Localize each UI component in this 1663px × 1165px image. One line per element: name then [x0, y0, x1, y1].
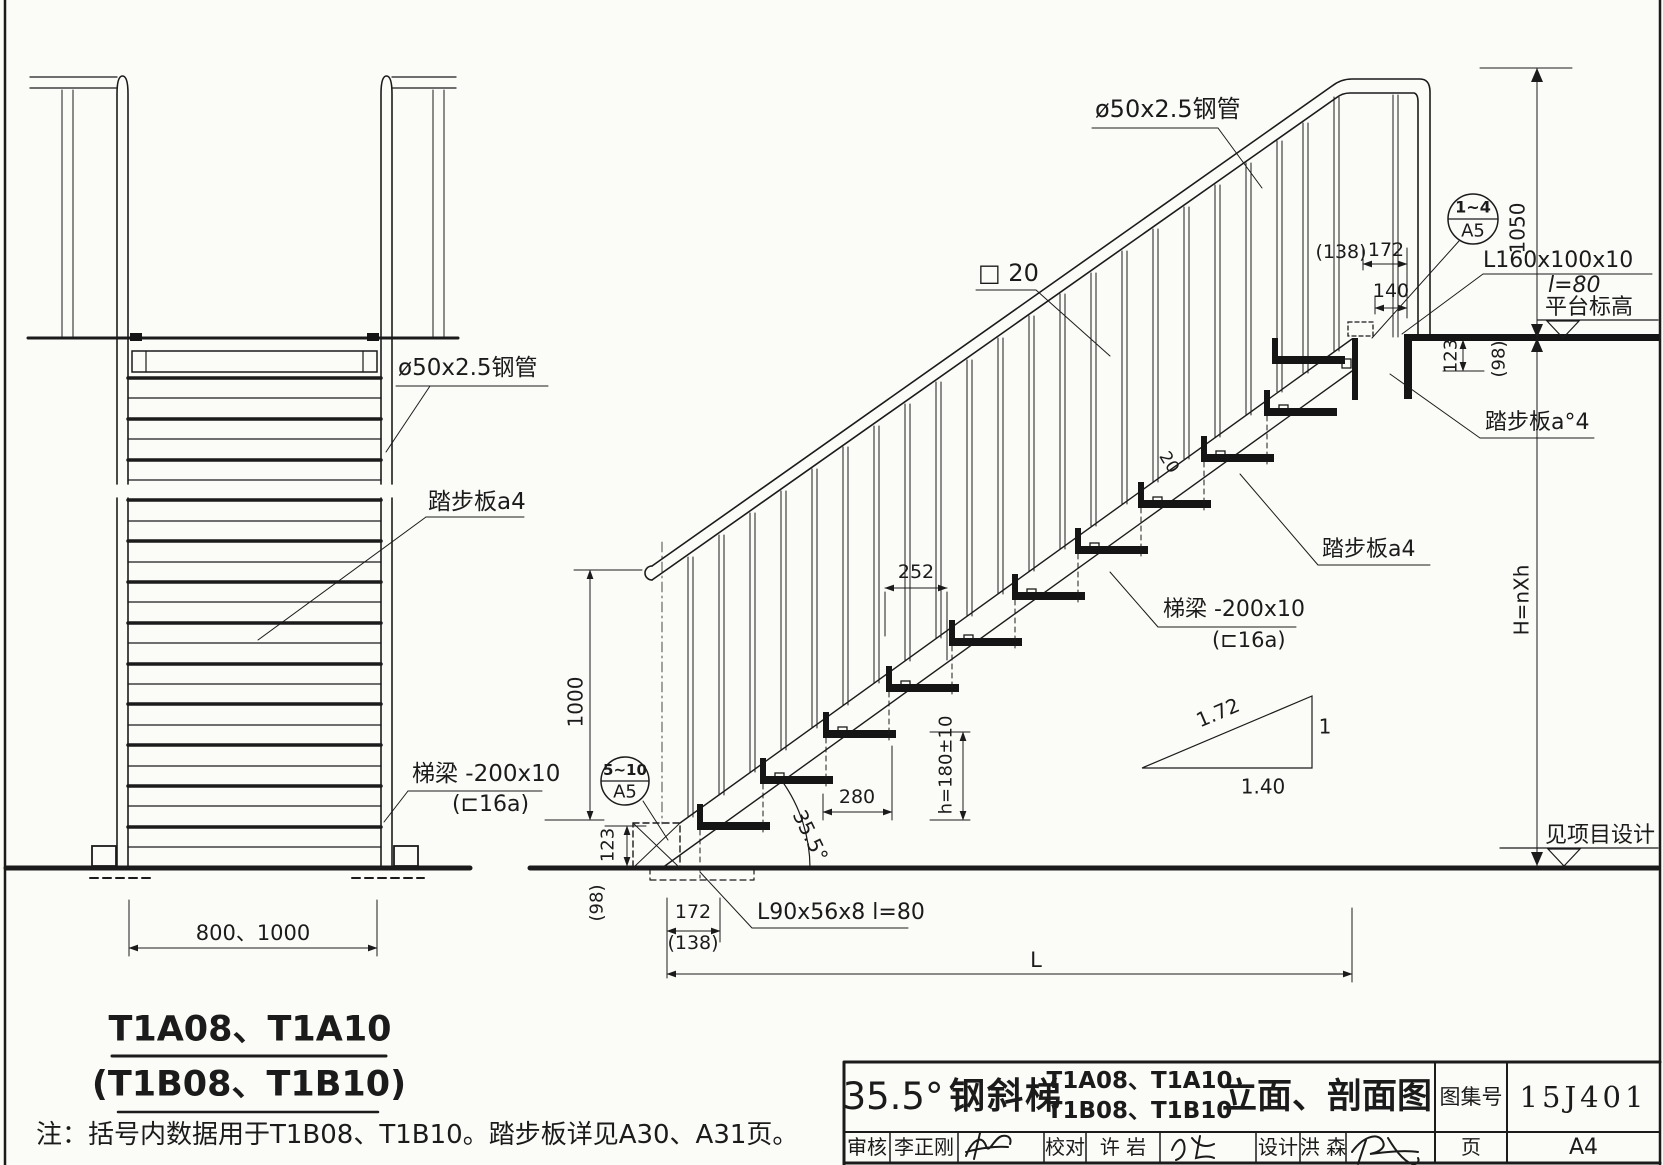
dim-height-1000: 1000 [566, 677, 587, 728]
dim-offset-paren-top: (138) [1315, 243, 1366, 263]
titleblock-check-label: 校对 [1044, 1132, 1086, 1163]
dim-rise-bottom-paren: (98) [589, 885, 608, 922]
detail-top-ref: 1~4 [1455, 200, 1491, 217]
titleblock-suffix: 立面、剖面图 [1222, 1062, 1432, 1132]
bottom-angle-label: L90x56x8 l=80 [757, 901, 925, 924]
dim-baluster-spacing: 252 [898, 563, 934, 583]
front-pipe-label: ø50x2.5钢管 [398, 356, 538, 380]
titleblock-review-label: 审核 [844, 1132, 890, 1163]
slope-horizontal: 1.40 [1241, 777, 1286, 798]
tread-plate-label: 踏步板a4 [1322, 538, 1415, 561]
detail-bottom-ref: 5~10 [603, 763, 647, 779]
dim-rail-height: 1050 [1508, 203, 1529, 254]
titleblock-models2: T1B08、T1B10 [1062, 1096, 1217, 1126]
front-model-title: T1A08、T1A10 [108, 1012, 391, 1049]
titleblock-atlas-no: 15J401 [1507, 1062, 1660, 1132]
dim-post-offset: 140 [1373, 282, 1409, 302]
front-stringer-channel: (⊏16a) [452, 793, 529, 816]
titleblock-atlas-label: 图集号 [1435, 1062, 1507, 1132]
front-tread-label: 踏步板a4 [428, 490, 526, 514]
ground-level-label: 见项目设计 [1545, 824, 1655, 847]
dim-step-rise: h=180±10 [938, 716, 957, 815]
titleblock-angle: 35.5° [848, 1062, 938, 1132]
section-stringer-channel: (⊏16a) [1212, 629, 1286, 651]
slope-vertical: 1 [1319, 717, 1332, 738]
section-view [545, 68, 1659, 982]
detail-bottom-sheet: A5 [613, 784, 637, 803]
front-model-title-alt: (T1B08、T1B10) [92, 1067, 406, 1104]
top-angle-length: l=80 [1548, 274, 1601, 297]
titleblock-models1: T1A08、T1A10 [1062, 1066, 1217, 1096]
ground-line [6, 868, 1658, 878]
section-pipe-label: ø50x2.5钢管 [1095, 97, 1241, 122]
drawing-sheet: ø50x2.5钢管 踏步板a4 梯梁 -200x10 (⊏16a) 800、10… [0, 0, 1663, 1165]
drawing-geometry [0, 0, 1663, 1165]
dim-rise-top: 123 [1443, 339, 1462, 373]
dim-offset-bottom: 172 [675, 903, 711, 923]
dim-tread-run: 280 [839, 788, 875, 808]
dim-total-height: H=nXh [1512, 565, 1533, 636]
titleblock-check-name: 许 岩 [1086, 1132, 1160, 1163]
section-stringer-label: 梯梁 -200x10 [1163, 598, 1305, 621]
titleblock-page-no: A4 [1507, 1132, 1660, 1163]
front-stringer-label: 梯梁 -200x10 [412, 762, 560, 786]
dim-rise-top-paren: (98) [1491, 341, 1510, 378]
dim-total-run: L [1030, 949, 1042, 971]
front-view [28, 76, 548, 1112]
titleblock-design-label: 设计 [1256, 1132, 1300, 1163]
ground-level-symbol [1500, 848, 1658, 866]
dim-offset-top: 172 [1368, 241, 1404, 261]
front-width-dim: 800、1000 [196, 922, 311, 944]
detail-top-sheet: A5 [1461, 223, 1485, 242]
note: 注：括号内数据用于T1B08、T1B10。踏步板详见A30、A31页。 [36, 1122, 798, 1149]
tread-plate-top-label: 踏步板a°4 [1485, 411, 1589, 434]
signature [966, 1133, 1419, 1164]
baluster-label: □ 20 [978, 261, 1039, 286]
dim-offset-paren-bottom: (138) [667, 934, 718, 954]
titleblock-review-name: 李正刚 [890, 1132, 958, 1163]
titleblock-page-label: 页 [1435, 1132, 1507, 1163]
platform-level-label: 平台标高 [1545, 296, 1633, 319]
titleblock-design-name: 洪 森 [1300, 1132, 1346, 1163]
dim-rise-bottom: 123 [600, 828, 619, 862]
